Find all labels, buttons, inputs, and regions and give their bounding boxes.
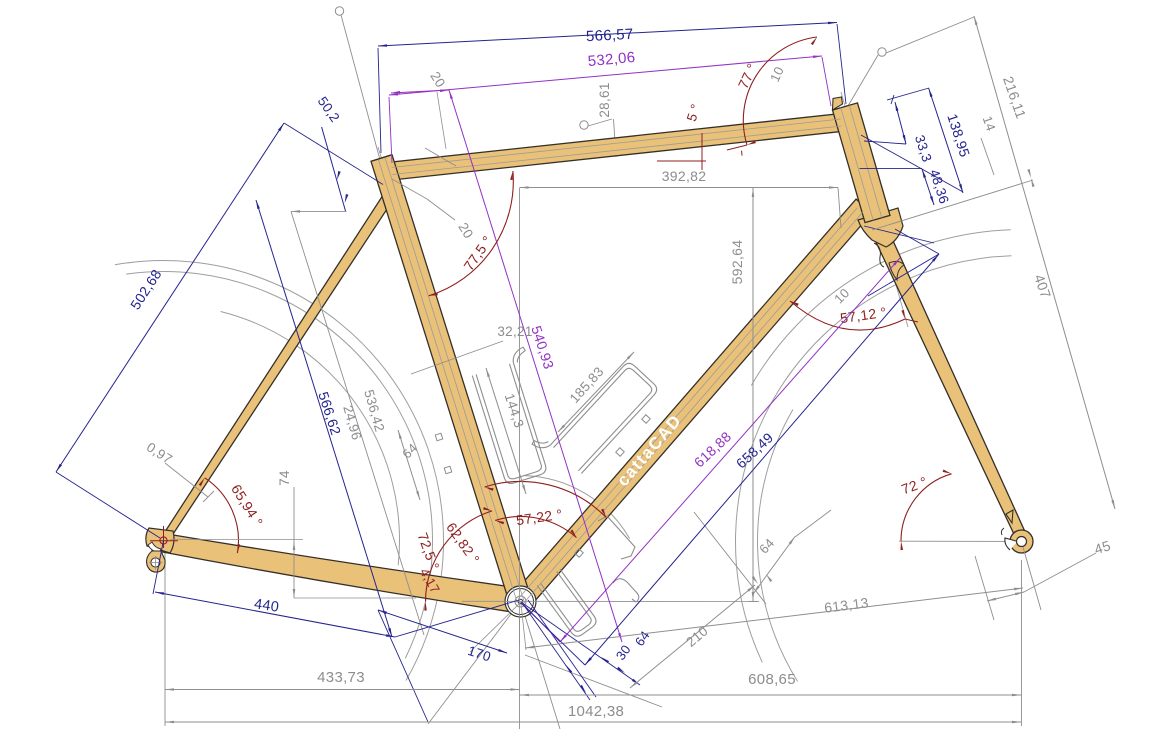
svg-text:566,57: 566,57 — [586, 26, 635, 45]
svg-text:592,64: 592,64 — [729, 240, 745, 285]
svg-text:1042,38: 1042,38 — [568, 703, 624, 720]
svg-text:392,82: 392,82 — [662, 168, 707, 184]
svg-text:74: 74 — [277, 470, 292, 486]
svg-text:32,21: 32,21 — [497, 324, 532, 339]
svg-text:608,65: 608,65 — [748, 671, 796, 688]
svg-text:28,61: 28,61 — [597, 82, 612, 117]
svg-text:433,73: 433,73 — [317, 669, 365, 686]
